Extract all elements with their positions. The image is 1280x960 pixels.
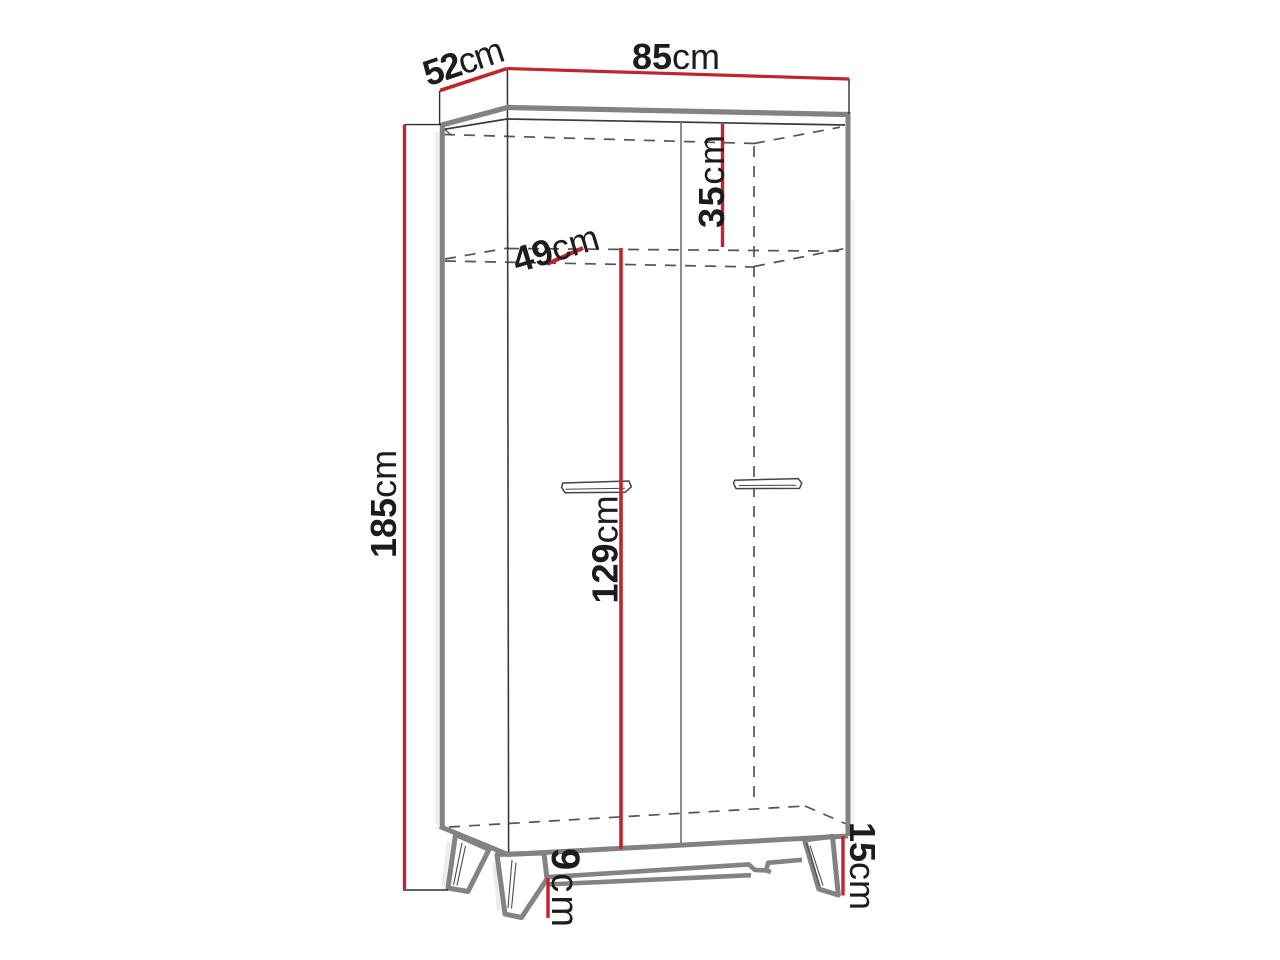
svg-text:85cm: 85cm bbox=[632, 36, 720, 77]
svg-text:9cm: 9cm bbox=[543, 848, 587, 927]
svg-text:185cm: 185cm bbox=[363, 450, 404, 558]
svg-text:35cm: 35cm bbox=[691, 135, 732, 228]
svg-text:129cm: 129cm bbox=[585, 495, 626, 603]
svg-text:15cm: 15cm bbox=[842, 822, 883, 910]
